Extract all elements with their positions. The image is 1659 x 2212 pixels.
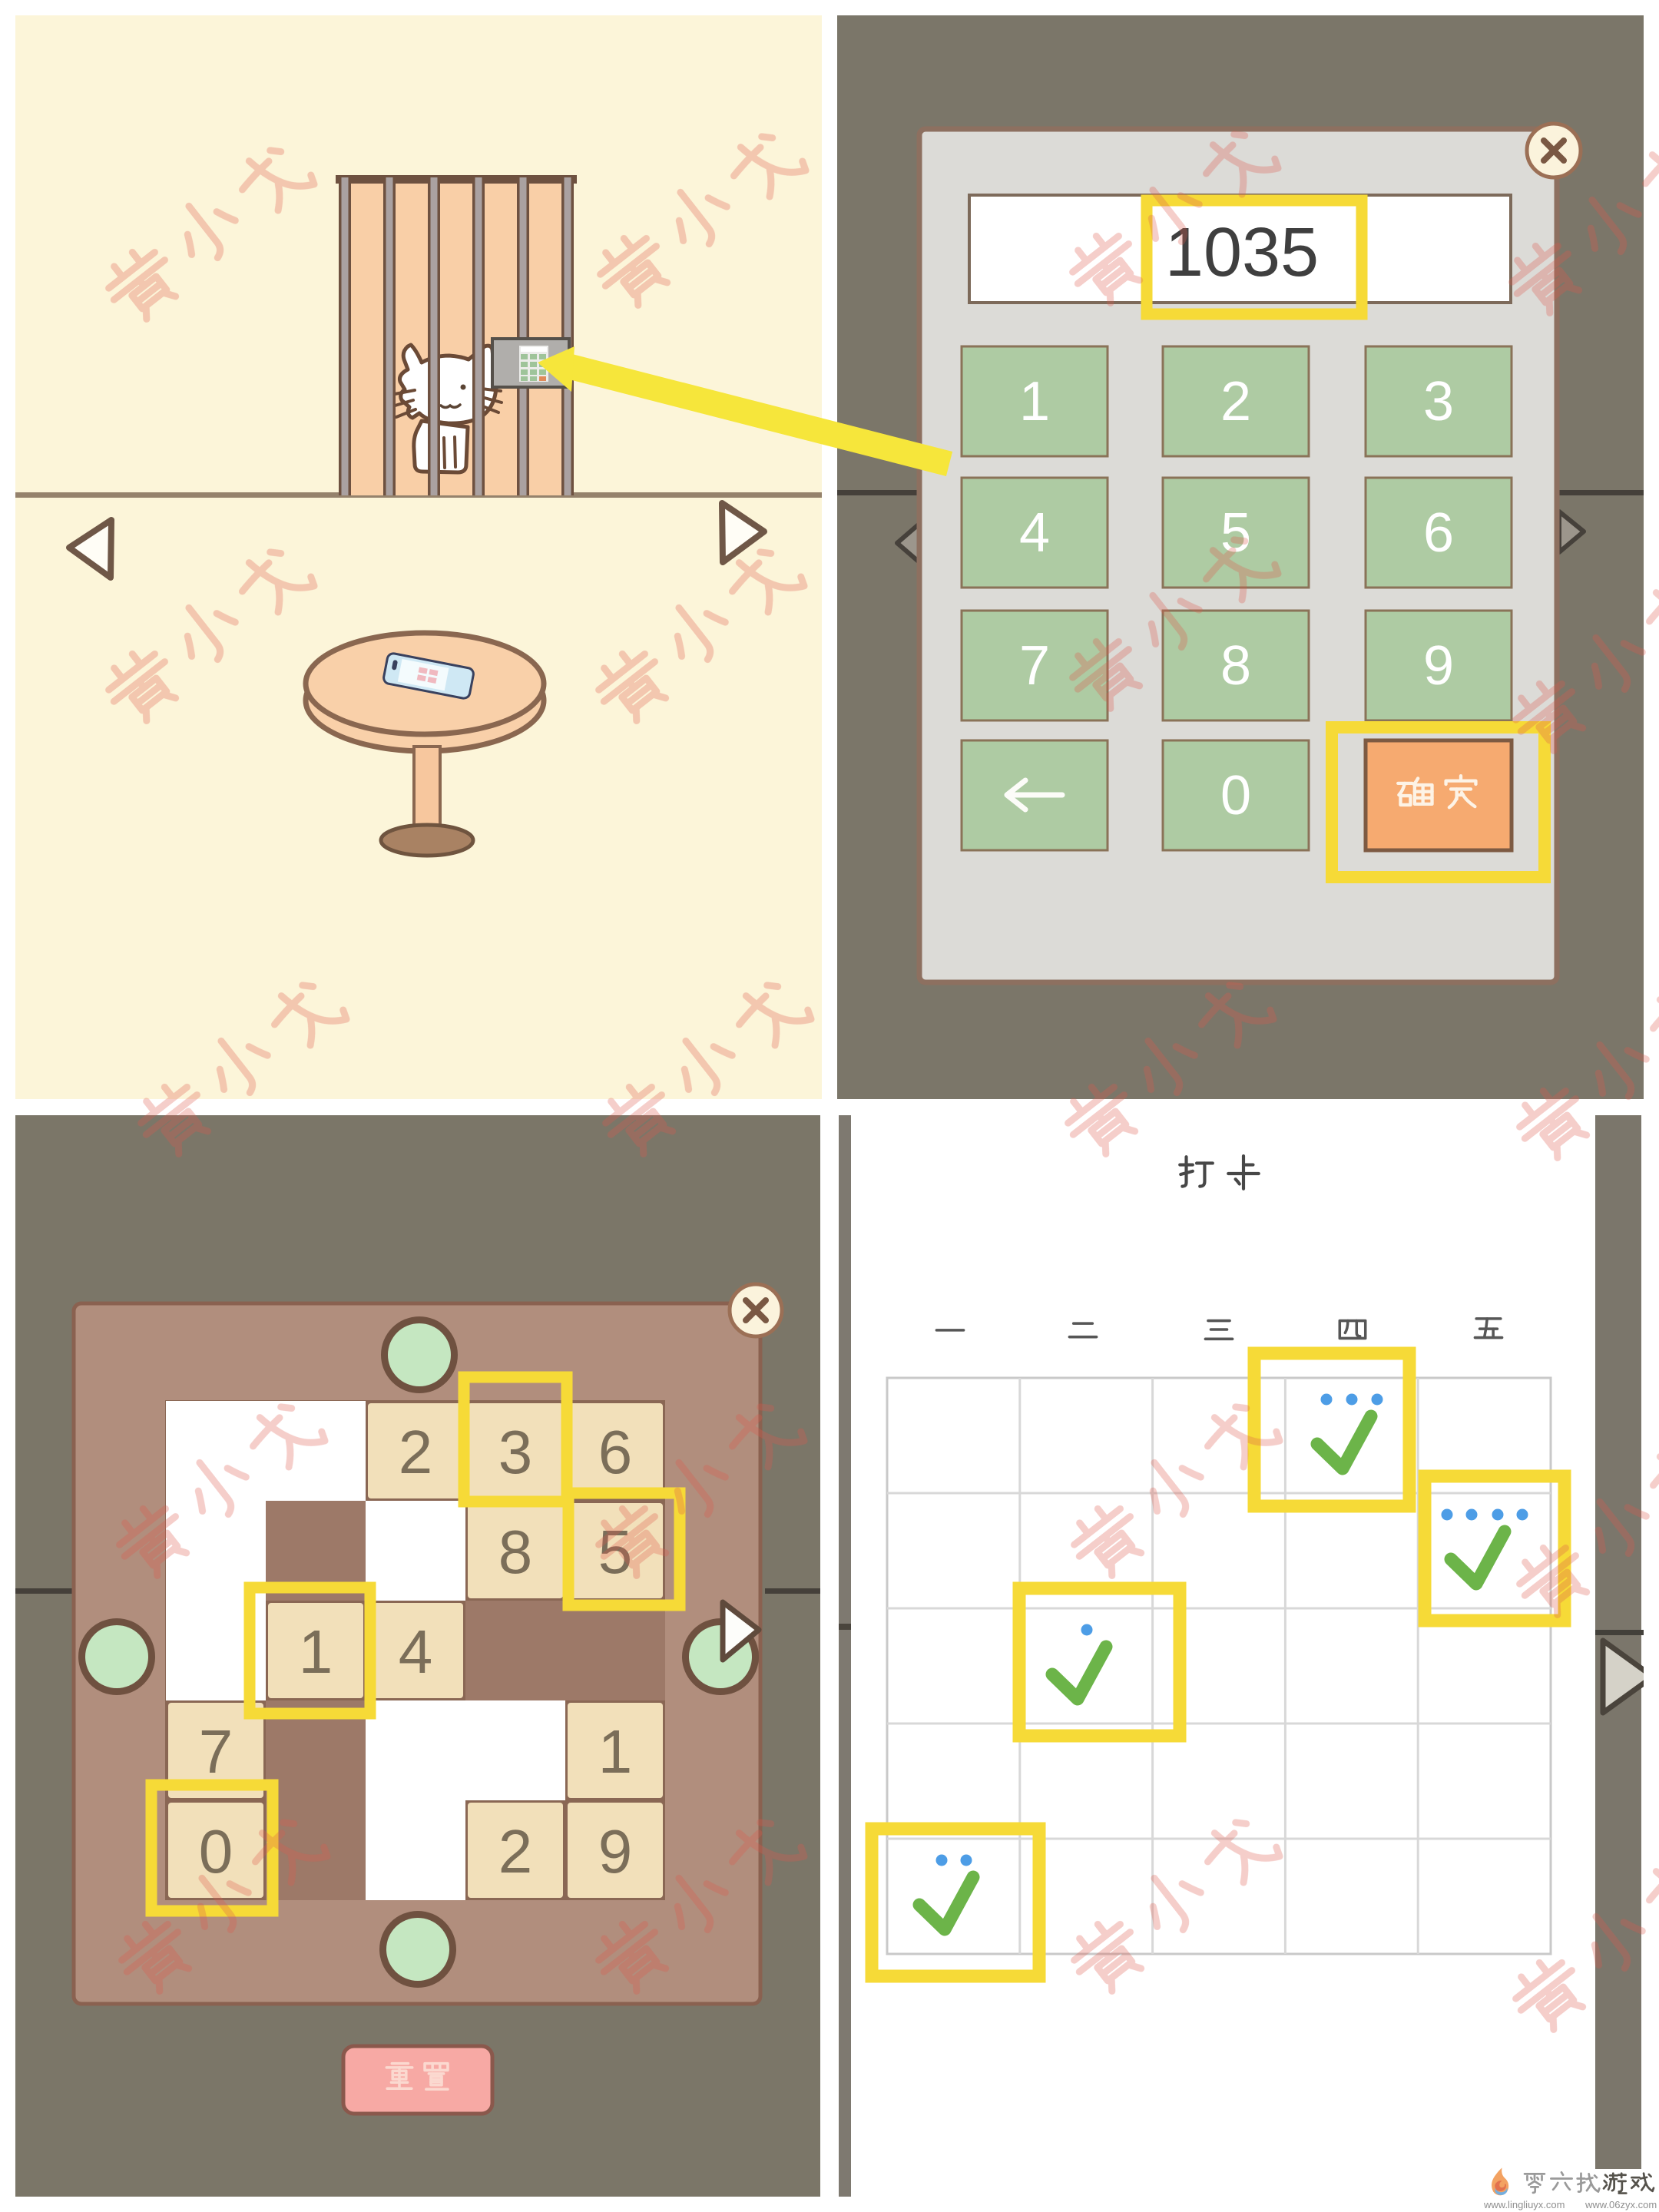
svg-text:7: 7 <box>1019 635 1050 697</box>
svg-text:6: 6 <box>1423 502 1454 564</box>
svg-text:9: 9 <box>598 1817 633 1886</box>
svg-text:4: 4 <box>399 1618 433 1686</box>
svg-text:6: 6 <box>598 1418 633 1486</box>
svg-text:3: 3 <box>498 1418 533 1486</box>
svg-text:2: 2 <box>498 1817 533 1886</box>
svg-text:1035: 1035 <box>1165 214 1319 291</box>
svg-text:www.06zyx.com: www.06zyx.com <box>1584 2199 1657 2210</box>
svg-text:0: 0 <box>1220 765 1251 826</box>
svg-text:9: 9 <box>1423 635 1454 697</box>
svg-text:8: 8 <box>498 1518 533 1586</box>
svg-text:2: 2 <box>1220 371 1251 432</box>
svg-text:2: 2 <box>399 1418 433 1486</box>
svg-text:1: 1 <box>598 1717 633 1786</box>
svg-text:8: 8 <box>1220 635 1251 697</box>
svg-text:www.lingliuyx.com: www.lingliuyx.com <box>1483 2199 1565 2210</box>
svg-text:3: 3 <box>1423 371 1454 432</box>
svg-text:4: 4 <box>1019 502 1050 564</box>
svg-text:1: 1 <box>1019 371 1050 432</box>
svg-text:7: 7 <box>199 1717 233 1786</box>
svg-text:1: 1 <box>299 1618 333 1686</box>
